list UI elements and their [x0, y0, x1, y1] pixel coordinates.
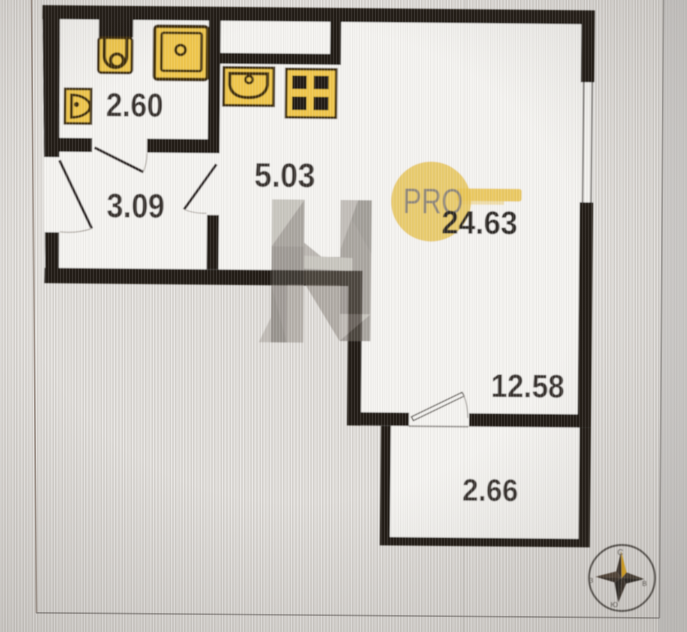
- svg-text:С: С: [617, 548, 623, 557]
- svg-text:24.63: 24.63: [441, 204, 517, 241]
- svg-text:В: В: [642, 579, 647, 588]
- svg-text:5.03: 5.03: [254, 156, 315, 195]
- svg-text:2.66: 2.66: [462, 473, 518, 509]
- svg-text:З: З: [589, 576, 594, 585]
- svg-text:Ю: Ю: [610, 600, 618, 609]
- svg-text:12.58: 12.58: [491, 368, 565, 405]
- svg-text:2.60: 2.60: [106, 86, 164, 125]
- svg-text:3.09: 3.09: [106, 187, 164, 226]
